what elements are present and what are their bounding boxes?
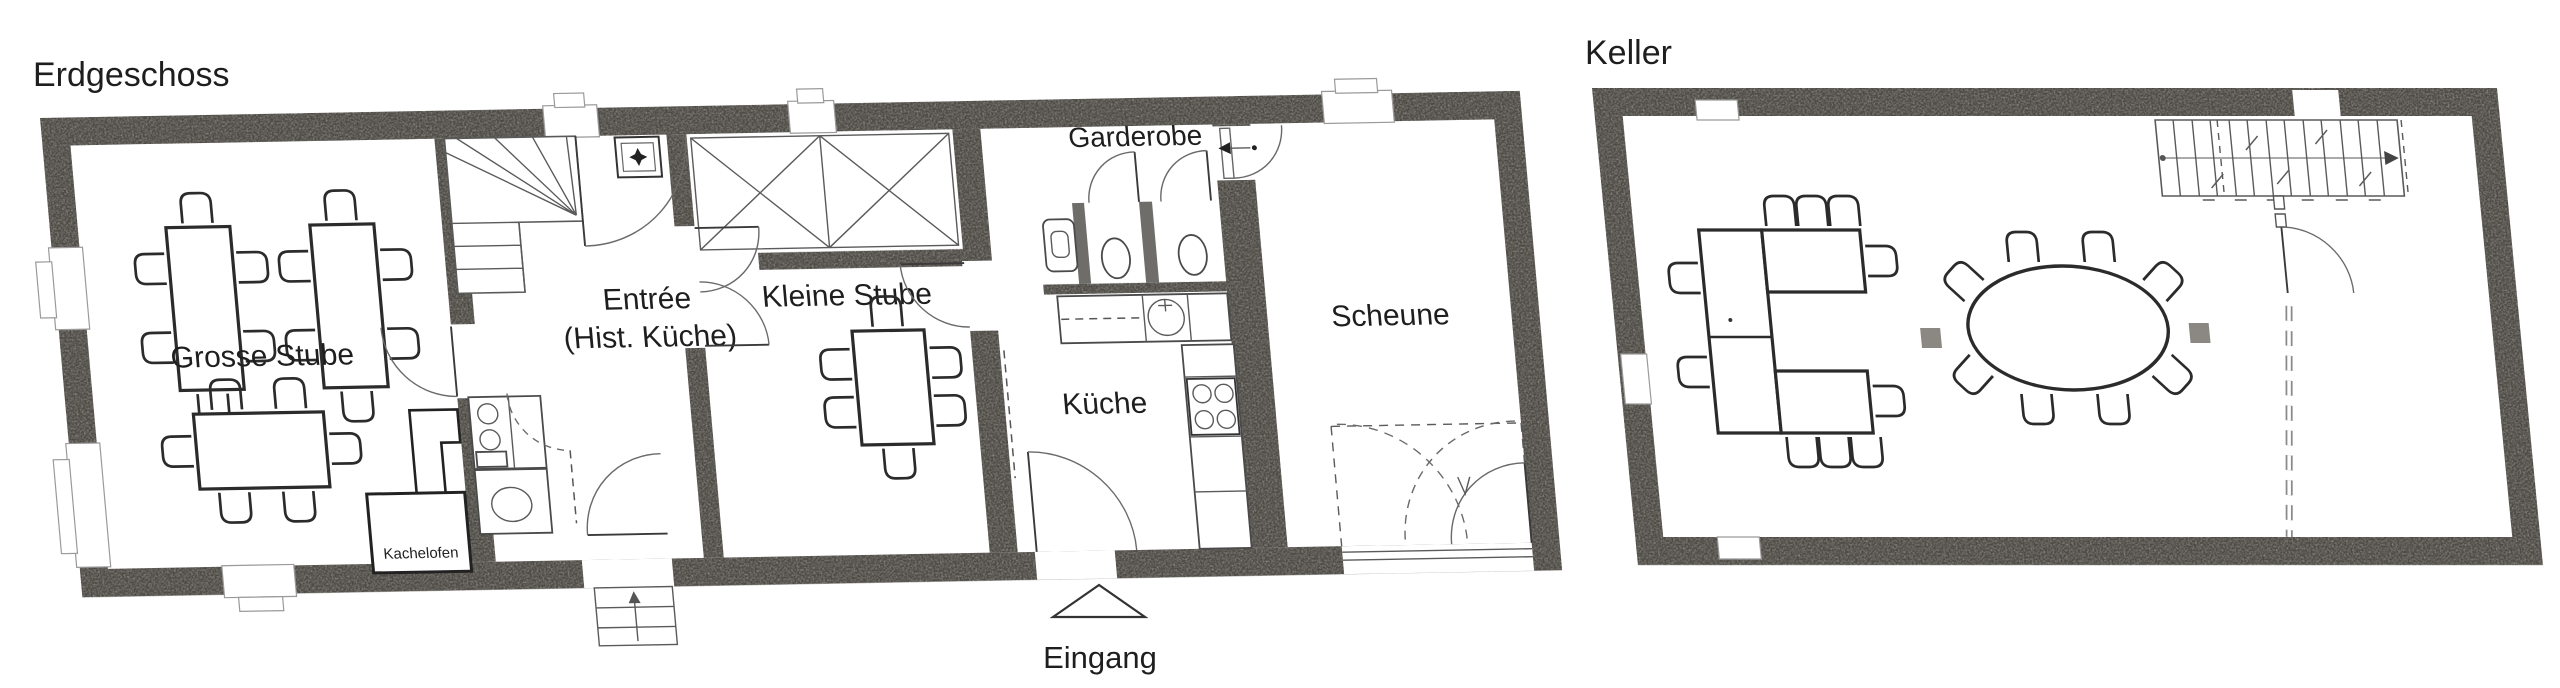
room-label-grosse-stube: Grosse Stube — [169, 338, 355, 374]
door-leaf — [705, 345, 769, 346]
kachelofen-label: Kachelofen — [383, 544, 459, 562]
eingang-arrow — [1053, 585, 1145, 617]
plan-title-erdgeschoss: Erdgeschoss — [33, 56, 230, 94]
column-post — [1920, 328, 1942, 348]
counter-divider — [1190, 436, 1242, 437]
window-sill — [554, 93, 585, 108]
plan-title-keller: Keller — [1585, 34, 1672, 72]
window — [222, 564, 297, 597]
appliance — [475, 469, 553, 534]
table — [852, 330, 934, 445]
floor-plan-page: Erdgeschoss — [0, 0, 2560, 688]
staircase — [2155, 120, 2409, 200]
exterior-steps — [594, 586, 677, 645]
room-label-kleine-stube: Kleine Stube — [760, 278, 933, 314]
window — [1717, 537, 1761, 559]
erdgeschoss-plan: Grosse Stube Kachelofen Entrée (Hist. Kü… — [22, 76, 1568, 656]
column-post — [2189, 323, 2211, 343]
door-leaf — [900, 263, 964, 264]
room-label-kueche: Küche — [1061, 387, 1149, 421]
window — [788, 100, 837, 133]
door-leaf — [695, 227, 759, 228]
keller-plan — [1592, 88, 2543, 565]
window-sill — [239, 597, 284, 612]
window — [1695, 100, 1739, 120]
door-post — [2273, 196, 2284, 209]
washbasin — [1042, 219, 1078, 271]
table — [193, 412, 330, 489]
door-post — [2275, 214, 2286, 227]
stair-wall-opening — [2292, 90, 2341, 118]
room-label-garderobe: Garderobe — [1067, 120, 1203, 153]
table — [1775, 371, 1873, 433]
window-sill — [797, 89, 824, 103]
table — [1762, 230, 1866, 292]
window-sill — [1334, 79, 1377, 94]
window — [1322, 90, 1395, 123]
eingang-label: Eingang — [1043, 640, 1157, 675]
floor-plans-figure: Erdgeschoss — [0, 0, 2560, 688]
room-label-scheune: Scheune — [1330, 298, 1451, 333]
counter-divider — [1185, 376, 1237, 377]
room-label-entree-2: (Hist. Küche) — [562, 319, 738, 355]
sink-basin — [476, 452, 507, 468]
counter-divider — [1195, 491, 1247, 492]
room-label-entree: Entrée — [601, 282, 692, 317]
window — [1621, 354, 1652, 404]
window — [543, 105, 600, 138]
